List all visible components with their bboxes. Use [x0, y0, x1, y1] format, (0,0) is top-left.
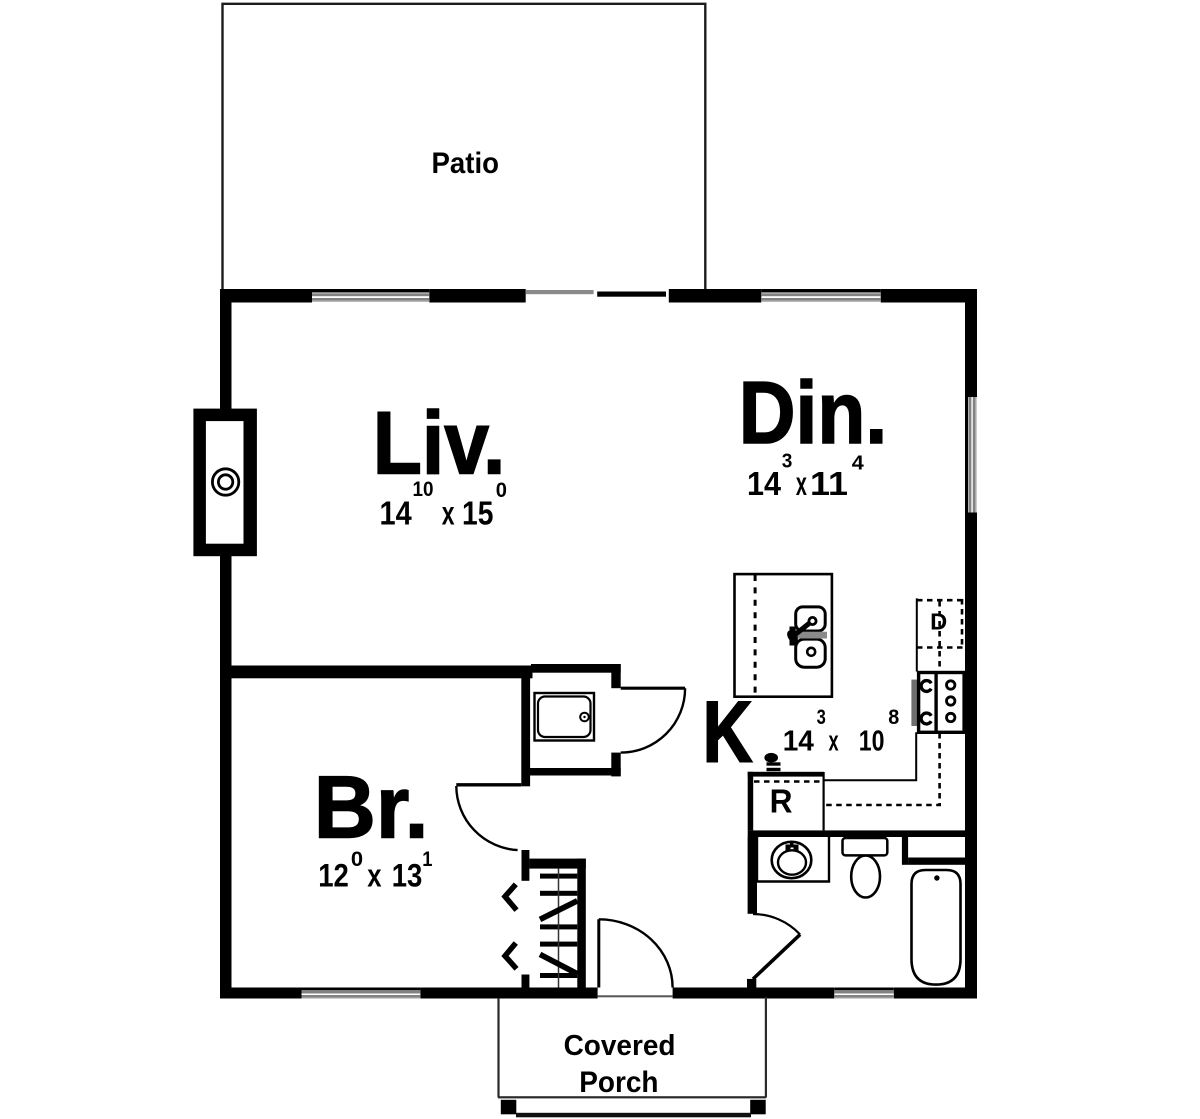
svg-text:Porch: Porch	[579, 1066, 658, 1099]
svg-text:x: x	[829, 726, 839, 758]
svg-text:14: 14	[747, 466, 781, 503]
svg-text:10: 10	[413, 478, 434, 501]
svg-text:Din.: Din.	[739, 363, 887, 462]
svg-text:R: R	[770, 783, 793, 820]
svg-text:x: x	[796, 466, 807, 503]
svg-text:14: 14	[783, 726, 814, 758]
svg-text:3: 3	[782, 451, 793, 473]
svg-text:K: K	[703, 685, 753, 781]
svg-text:13: 13	[392, 858, 423, 894]
svg-text:Patio: Patio	[432, 147, 500, 180]
svg-text:0: 0	[496, 479, 507, 502]
svg-text:1: 1	[422, 848, 432, 871]
svg-text:3: 3	[817, 706, 826, 729]
svg-text:x: x	[367, 858, 381, 894]
svg-text:0: 0	[351, 848, 363, 871]
svg-text:8: 8	[888, 706, 899, 729]
svg-text:4: 4	[852, 453, 865, 475]
svg-text:Br.: Br.	[314, 757, 429, 856]
svg-text:Covered: Covered	[564, 1030, 676, 1062]
svg-text:12: 12	[318, 858, 349, 894]
svg-text:x: x	[442, 495, 455, 532]
svg-text:Liv.: Liv.	[373, 393, 506, 493]
svg-text:14: 14	[380, 495, 413, 532]
svg-text:15: 15	[462, 495, 493, 532]
svg-text:10: 10	[859, 726, 885, 758]
svg-text:11: 11	[810, 466, 848, 503]
